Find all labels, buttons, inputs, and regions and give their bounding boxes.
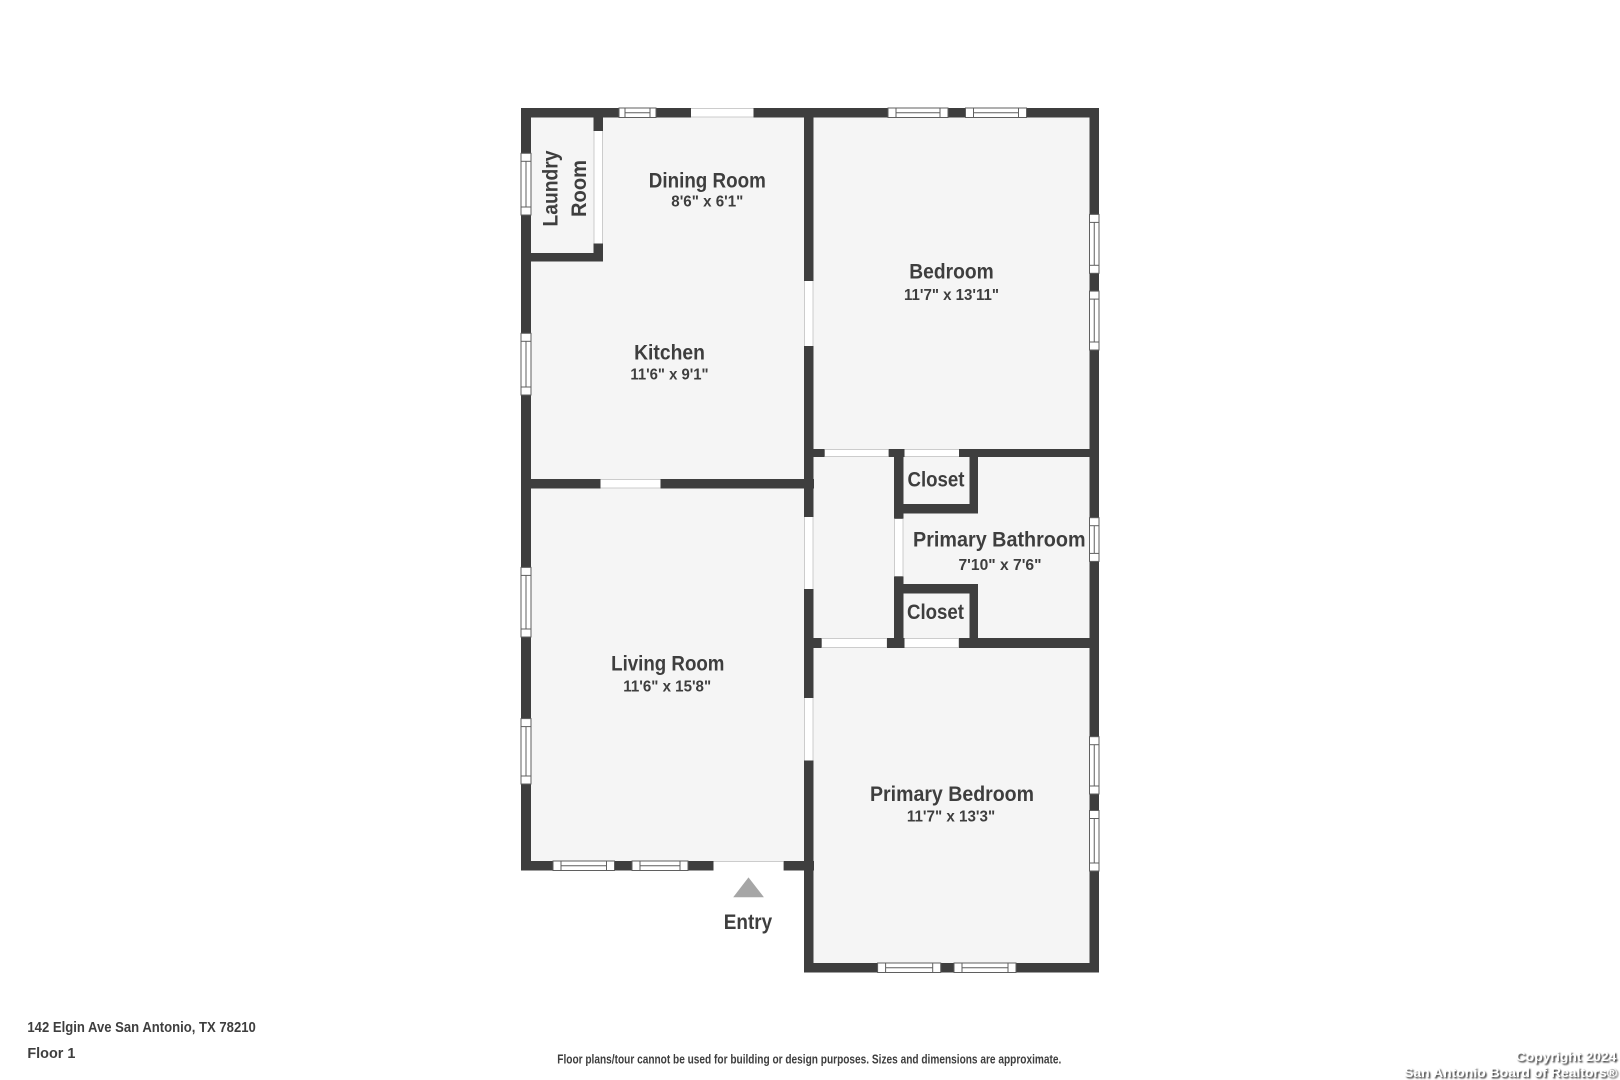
svg-text:Room: Room [568,160,591,217]
svg-text:8'6" x 6'1": 8'6" x 6'1" [671,193,743,210]
svg-text:Laundry: Laundry [540,150,563,226]
svg-text:11'7" x 13'11": 11'7" x 13'11" [904,287,999,304]
svg-text:Bedroom: Bedroom [909,261,993,284]
svg-text:Living Room: Living Room [611,653,724,676]
svg-text:Entry: Entry [724,911,773,934]
svg-text:Copyright 2024: Copyright 2024 [1516,1050,1617,1064]
svg-text:142 Elgin Ave San Antonio, TX: 142 Elgin Ave San Antonio, TX 78210 [27,1019,255,1036]
svg-text:7'10" x 7'6": 7'10" x 7'6" [959,557,1042,574]
svg-text:Dining Room: Dining Room [649,170,766,193]
svg-text:11'6" x 9'1": 11'6" x 9'1" [630,366,708,383]
svg-text:11'6" x 15'8": 11'6" x 15'8" [623,679,711,696]
svg-text:Closet: Closet [908,468,965,491]
svg-text:11'7" x 13'3": 11'7" x 13'3" [907,809,995,826]
svg-text:Primary Bathroom: Primary Bathroom [913,529,1086,552]
svg-text:Primary Bedroom: Primary Bedroom [870,783,1034,806]
svg-text:Kitchen: Kitchen [634,341,705,364]
svg-text:Floor plans/tour cannot be use: Floor plans/tour cannot be used for buil… [557,1053,1061,1067]
svg-text:San Antonio Board of Realtors®: San Antonio Board of Realtors® [1404,1066,1618,1080]
svg-text:Floor 1: Floor 1 [27,1045,75,1062]
svg-text:Closet: Closet [907,601,964,624]
